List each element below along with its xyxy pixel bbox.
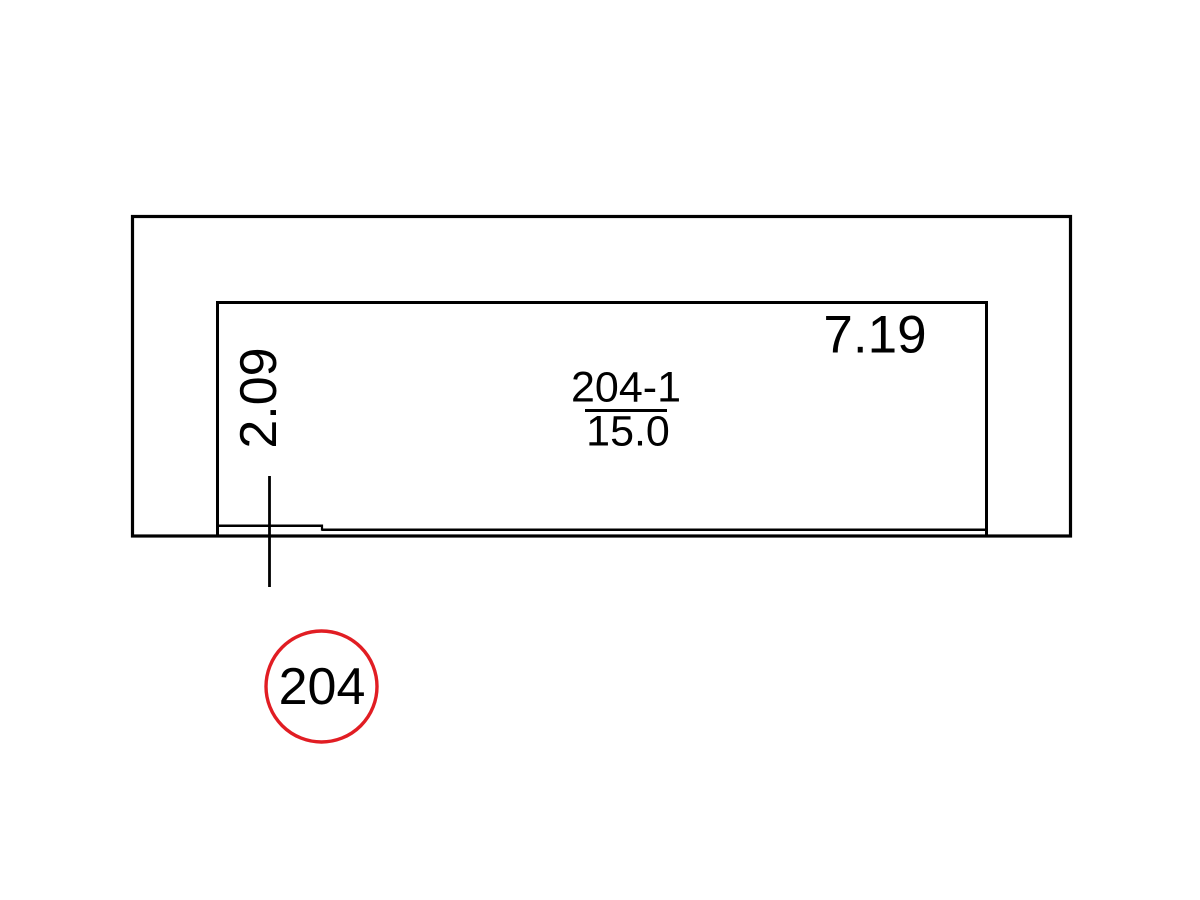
- room-area-label: 15.0: [586, 411, 670, 454]
- floor-plan-canvas: 7.19 2.09 204-1 15.0 204: [0, 0, 1200, 900]
- room-tag-label: 204: [279, 661, 366, 713]
- dimension-height-label: 2.09: [233, 347, 285, 448]
- room-id-label: 204-1: [571, 367, 681, 410]
- dimension-width-label: 7.19: [823, 309, 926, 362]
